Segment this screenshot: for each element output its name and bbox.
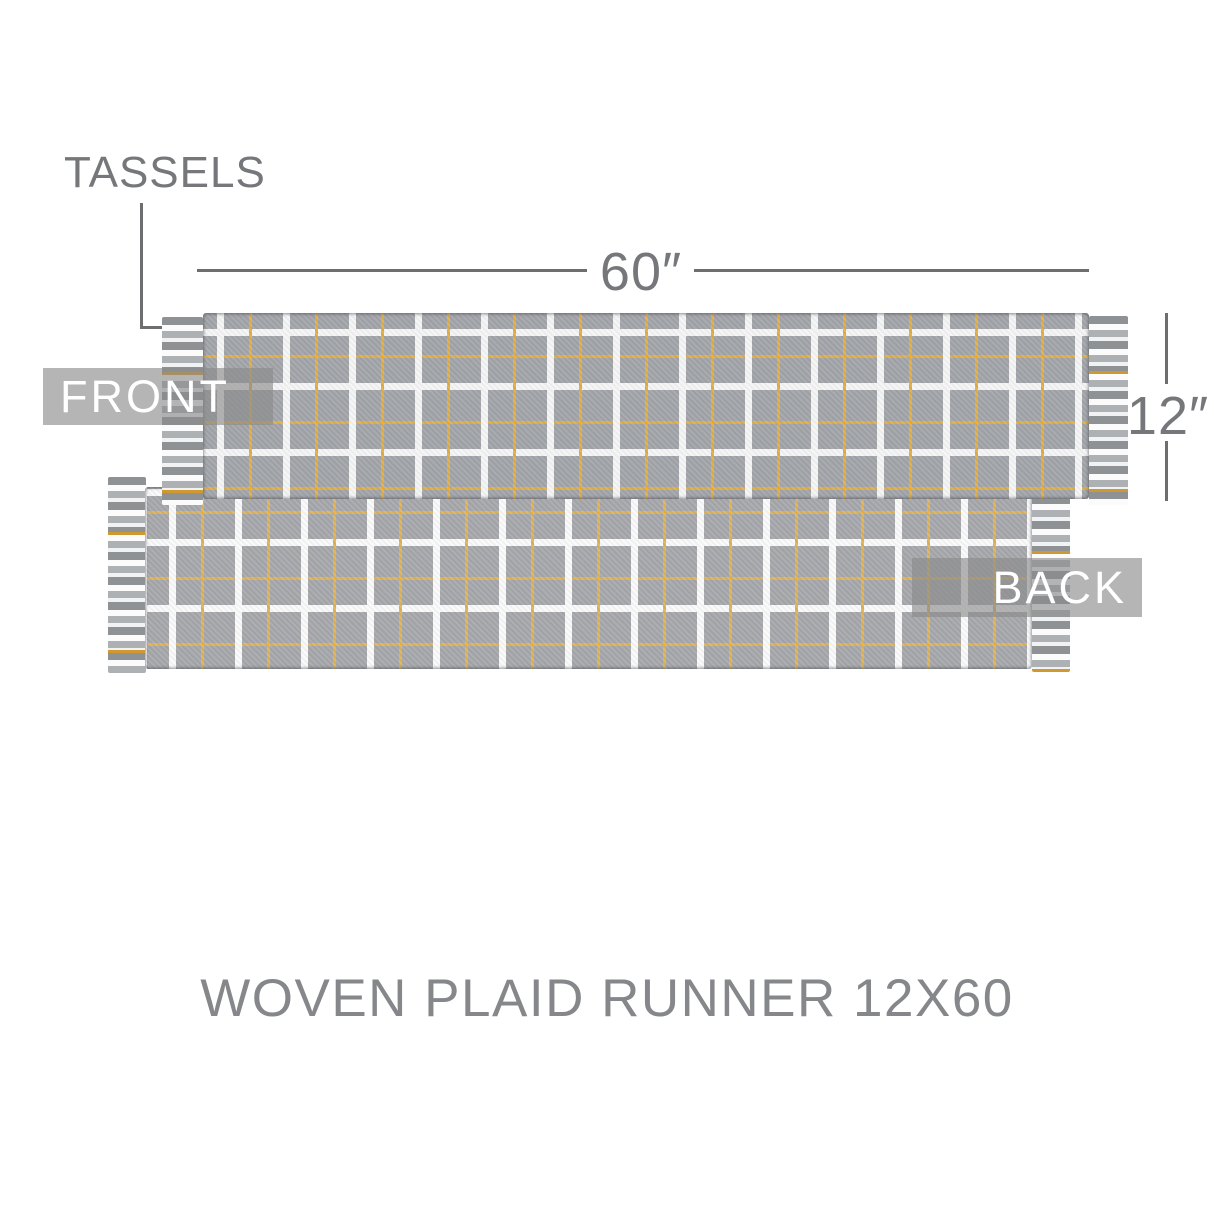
product-title: WOVEN PLAID RUNNER 12X60 (0, 968, 1214, 1029)
height-dimension-label: 12″ (1124, 385, 1212, 447)
runner-front-fringe-right (1089, 316, 1128, 505)
height-dimension-line-top (1165, 313, 1168, 384)
back-badge: BACK (912, 558, 1142, 617)
width-dimension-label: 60″ (588, 241, 694, 303)
height-dimension-line-bottom (1165, 441, 1168, 501)
width-dimension-line-left (197, 269, 587, 272)
product-diagram: TASSELS 60″ 12″ FRONT BACK WOVEN PLAID R… (0, 0, 1214, 1214)
tassels-leader-line-vertical (140, 203, 143, 329)
front-badge-label: FRONT (60, 371, 230, 422)
runner-front-fabric (203, 313, 1089, 499)
runner-back-fabric (145, 487, 1032, 669)
runner-back-fringe-left (108, 477, 146, 673)
back-badge-label: BACK (992, 562, 1127, 613)
tassels-label: TASSELS (64, 148, 266, 198)
width-dimension-line-right (694, 269, 1089, 272)
tassels-leader-line-horizontal (140, 326, 163, 329)
front-badge: FRONT (43, 368, 273, 425)
